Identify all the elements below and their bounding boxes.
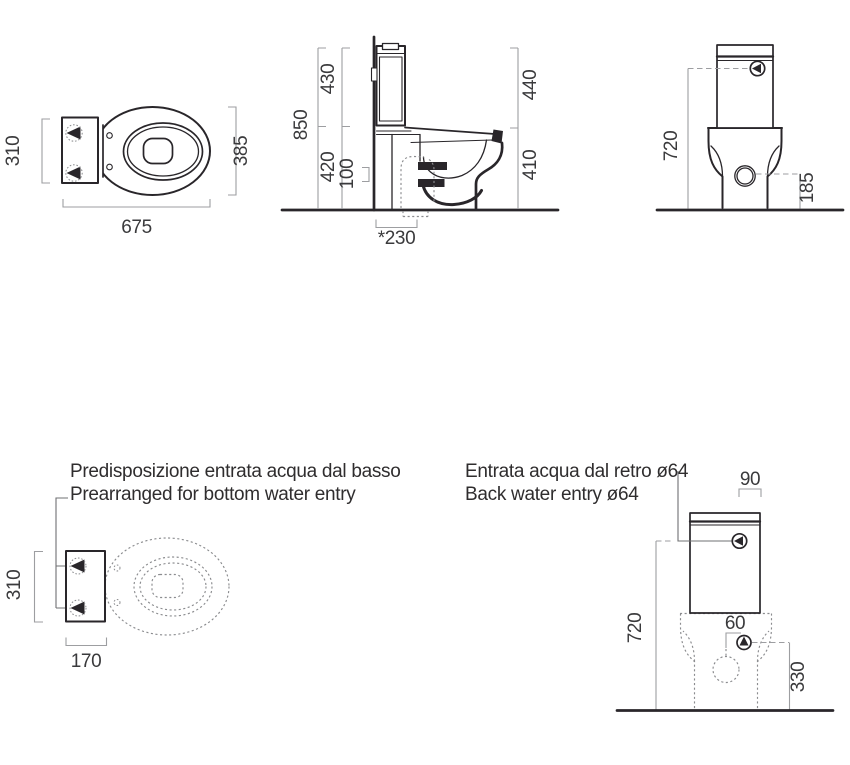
dim-inlet-height-label: 720: [661, 131, 682, 162]
dim-tank-depth-label: 170: [71, 651, 102, 672]
back-entry-view: Entrata acqua dal retro ø64 Back water e…: [465, 461, 833, 711]
pedestal-left-inner-dashed: [683, 631, 695, 662]
hinge-hole-dashed: [114, 565, 120, 571]
caption-english: Back water entry ø64: [465, 484, 639, 505]
dimension-bracket-230: [376, 220, 417, 228]
rim-front-section: [492, 130, 504, 144]
pedestal-left-outline: [709, 128, 723, 208]
drain-hole-icon: [735, 166, 755, 186]
dimension-bracket-310: [35, 552, 44, 623]
dim-lower-height-label: 420: [318, 152, 339, 183]
bowl-interior-line: [424, 140, 487, 178]
dim-back-height-label: 440: [520, 70, 541, 101]
dimension-bracket-100: [362, 168, 369, 182]
dim-tank-width-label: 310: [3, 136, 24, 167]
pedestal-right-dashed: [758, 614, 772, 710]
caption-english: Prearranged for bottom water entry: [70, 484, 356, 505]
bowl-sump-dashed: [152, 575, 183, 598]
dim-center-offset-label: 60: [725, 613, 745, 634]
seat-ring-dashed-outer: [134, 557, 212, 616]
seat-ring-dashed-inner: [140, 563, 206, 610]
drain-hole-icon: [737, 168, 753, 184]
dim-cistern-height-label: 430: [318, 64, 339, 95]
dimension-line-440-410: [510, 48, 518, 209]
floor-outlet-dashed: [403, 211, 428, 217]
dim-tank-width-label: 310: [4, 570, 25, 601]
flush-button: [383, 44, 399, 50]
top-view: 310 385 675: [3, 101, 252, 238]
dim-total-length-label: 675: [121, 217, 152, 238]
dim-front-height-label: 410: [520, 150, 541, 181]
dimension-bracket-310: [42, 119, 50, 183]
platform-lines: [377, 131, 421, 135]
supply-pipe: [372, 68, 378, 81]
seat-underside-line: [411, 140, 492, 143]
pedestal-left-dashed: [681, 614, 695, 710]
dim-side-hole-height-label: 185: [797, 173, 818, 204]
dim-edge-offset-label: 90: [740, 469, 760, 490]
dim-entry-height-label: 330: [788, 662, 809, 693]
dimension-bracket-170: [66, 638, 107, 646]
dim-bowl-width-label: 385: [231, 136, 252, 167]
side-view: 850 430 420 100 440 410 *230: [282, 37, 558, 249]
bowl-outline: [95, 107, 210, 195]
flush-channel-section: [418, 179, 445, 187]
technical-drawing-sheet: 310 385 675 850 430 420: [0, 0, 850, 765]
rear-view: 720 185: [657, 45, 843, 210]
dim-inlet-height-label: 100: [337, 159, 358, 190]
bowl-front-profile: [476, 143, 502, 209]
dim-outlet-from-wall-label: *230: [378, 228, 416, 249]
drawing-canvas: 310 385 675 850 430 420: [0, 0, 850, 765]
seat-top-line: [405, 128, 495, 135]
bowl-dashed-outline: [105, 538, 229, 635]
pedestal-right-outline: [768, 128, 782, 208]
cistern-outline: [690, 513, 760, 613]
dim-total-height-label: 850: [291, 110, 312, 141]
bottom-entry-view: Predisposizione entrata acqua dal basso …: [4, 461, 401, 672]
hinge-hole-dashed: [114, 600, 120, 606]
caption-italian: Entrata acqua dal retro ø64: [465, 461, 689, 482]
cistern-section: [377, 46, 406, 126]
dimension-bracket-90: [739, 489, 761, 497]
cistern-outline: [66, 551, 105, 622]
drain-hole-dashed: [713, 657, 739, 683]
dim-inlet-height-label: 720: [625, 613, 646, 644]
bowl-sump-profile: [423, 185, 482, 205]
pedestal-right-inner-dashed: [758, 631, 770, 662]
caption-italian: Predisposizione entrata acqua dal basso: [70, 461, 401, 482]
